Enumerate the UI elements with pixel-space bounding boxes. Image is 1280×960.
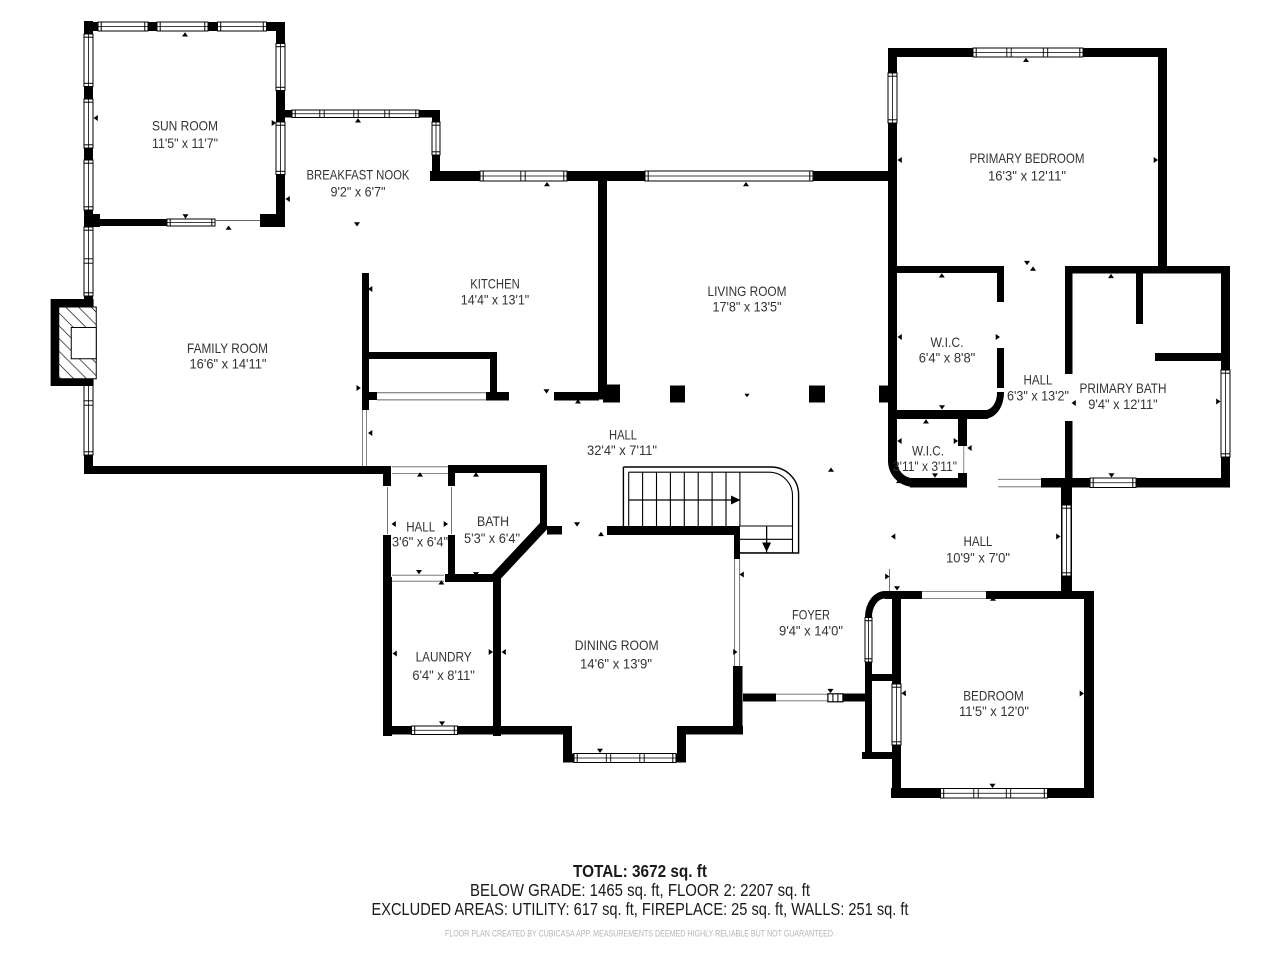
svg-text:5'3" x 6'4": 5'3" x 6'4": [464, 531, 520, 546]
svg-text:BELOW GRADE: 1465 sq. ft, FLOO: BELOW GRADE: 1465 sq. ft, FLOOR 2: 2207 …: [470, 880, 810, 900]
svg-text:14'4" x 13'1": 14'4" x 13'1": [461, 293, 530, 308]
svg-text:11'5" x 12'0": 11'5" x 12'0": [959, 704, 1029, 719]
svg-text:BEDROOM: BEDROOM: [963, 689, 1024, 704]
svg-text:DINING ROOM: DINING ROOM: [575, 638, 659, 653]
svg-text:SUN ROOM: SUN ROOM: [152, 119, 218, 134]
svg-text:LAUNDRY: LAUNDRY: [416, 650, 472, 665]
svg-text:HALL: HALL: [964, 534, 993, 549]
svg-text:TOTAL: 3672 sq. ft: TOTAL: 3672 sq. ft: [573, 861, 707, 881]
svg-text:HALL: HALL: [406, 520, 435, 535]
svg-text:BATH: BATH: [477, 514, 509, 529]
svg-text:9'4" x 12'11": 9'4" x 12'11": [1088, 397, 1158, 412]
svg-text:3'11" x 3'11": 3'11" x 3'11": [893, 459, 957, 474]
svg-text:9'4" x 14'0": 9'4" x 14'0": [779, 623, 843, 638]
svg-text:16'3" x 12'11": 16'3" x 12'11": [988, 168, 1066, 183]
svg-text:6'4" x 8'8": 6'4" x 8'8": [919, 351, 976, 366]
svg-text:14'6" x 13'9": 14'6" x 13'9": [580, 656, 652, 671]
svg-text:EXCLUDED AREAS: UTILITY: 617 s: EXCLUDED AREAS: UTILITY: 617 sq. ft, FIR…: [372, 899, 909, 919]
svg-text:11'5" x 11'7": 11'5" x 11'7": [152, 136, 218, 151]
svg-text:3'6" x 6'4": 3'6" x 6'4": [392, 535, 448, 550]
svg-text:KITCHEN: KITCHEN: [470, 276, 520, 291]
svg-text:PRIMARY BATH: PRIMARY BATH: [1080, 381, 1167, 396]
svg-text:32'4" x 7'11": 32'4" x 7'11": [587, 443, 657, 458]
svg-text:HALL: HALL: [609, 427, 637, 442]
svg-text:FLOOR PLAN CREATED BY CUBICASA: FLOOR PLAN CREATED BY CUBICASA APP. MEAS…: [445, 929, 835, 939]
svg-text:W.I.C.: W.I.C.: [912, 443, 944, 458]
svg-text:FOYER: FOYER: [792, 607, 830, 622]
svg-text:BREAKFAST NOOK: BREAKFAST NOOK: [307, 167, 411, 182]
svg-text:6'4" x 8'11": 6'4" x 8'11": [412, 668, 475, 683]
svg-text:17'8" x 13'5": 17'8" x 13'5": [713, 300, 782, 315]
svg-text:W.I.C.: W.I.C.: [931, 335, 964, 350]
svg-text:6'3" x 13'2": 6'3" x 13'2": [1007, 388, 1069, 403]
svg-text:9'2" x 6'7": 9'2" x 6'7": [331, 185, 386, 200]
svg-text:FAMILY ROOM: FAMILY ROOM: [187, 341, 268, 356]
svg-text:16'6" x 14'11": 16'6" x 14'11": [190, 357, 267, 372]
svg-text:LIVING ROOM: LIVING ROOM: [708, 284, 787, 299]
svg-text:10'9" x 7'0": 10'9" x 7'0": [946, 551, 1010, 566]
svg-text:PRIMARY BEDROOM: PRIMARY BEDROOM: [970, 151, 1085, 166]
svg-text:HALL: HALL: [1024, 372, 1053, 387]
